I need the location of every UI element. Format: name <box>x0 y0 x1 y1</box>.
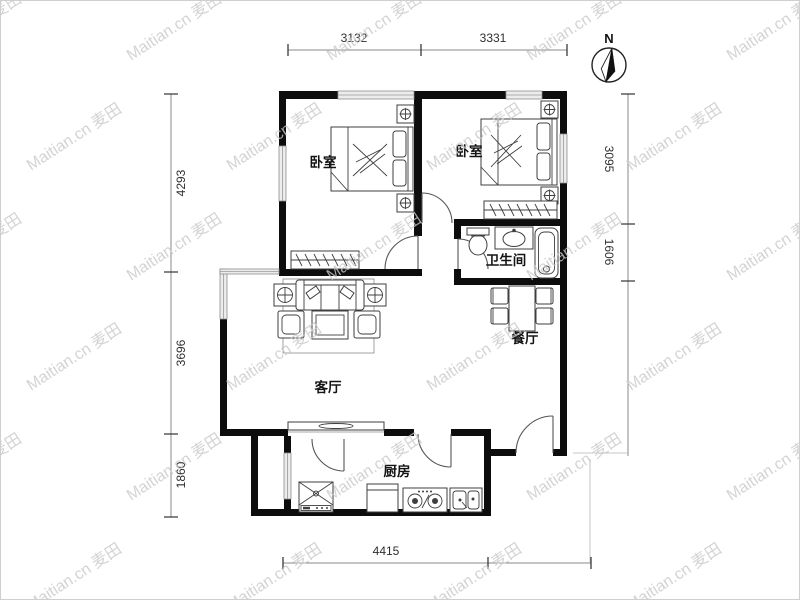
side-table-plant <box>364 284 386 306</box>
watermark-text: Maitian.cn 麦田 <box>423 320 525 395</box>
armchair <box>354 311 380 338</box>
watermark-text: Maitian.cn 麦田 <box>123 430 225 505</box>
floorplan-page: 3132 3331 4293 3696 1860 3095 1606 4415 <box>0 0 800 600</box>
wall-seg <box>560 91 567 134</box>
kitchen-sink <box>450 488 482 512</box>
watermark-text: Maitian.cn 麦田 <box>223 320 325 395</box>
door-laundry <box>312 439 344 471</box>
wall-seg <box>454 226 461 239</box>
label-bedroom1: 卧室 <box>310 154 337 170</box>
dimension-right: 3095 1606 <box>573 94 635 456</box>
watermark-text: Maitian.cn 麦田 <box>423 540 525 600</box>
wall-seg <box>284 499 291 516</box>
window-bedroom1-left <box>279 146 286 201</box>
wall-seg <box>553 449 567 456</box>
watermark-text: Maitian.cn 麦田 <box>623 540 725 600</box>
wall-seg <box>279 201 286 276</box>
watermark-text: Maitian.cn 麦田 <box>123 1 225 64</box>
side-table-plant <box>274 284 296 306</box>
watermark-text: Maitian.cn 麦田 <box>323 1 425 64</box>
dim-value: 3331 <box>480 31 507 45</box>
watermark-text: Maitian.cn 麦田 <box>123 210 225 285</box>
wall-seg <box>560 183 567 456</box>
wall-seg <box>414 91 506 99</box>
north-label: N <box>604 31 613 46</box>
watermark-text: Maitian.cn 麦田 <box>23 320 125 395</box>
dining-chair <box>491 308 508 324</box>
window-bedroom2-right <box>560 134 567 183</box>
watermark-text: Maitian.cn 麦田 <box>23 100 125 175</box>
wall-seg <box>220 429 288 436</box>
watermark-text: Maitian.cn 麦田 <box>523 430 625 505</box>
wall-seg <box>454 278 567 285</box>
furniture-dining <box>491 286 553 331</box>
dim-value: 1606 <box>602 239 616 266</box>
tv-cabinet <box>288 422 384 430</box>
window-bedroom2-top <box>506 91 542 99</box>
wall-seg <box>279 91 338 99</box>
sofa <box>296 280 364 310</box>
watermark-text: Maitian.cn 麦田 <box>723 430 800 505</box>
wall-seg <box>220 319 227 436</box>
watermark-text: Maitian.cn 麦田 <box>1 1 25 64</box>
wall-seg <box>454 219 567 226</box>
watermark-text: Maitian.cn 麦田 <box>23 540 125 600</box>
door-bedroom2 <box>422 193 452 223</box>
compass-needle <box>599 47 619 83</box>
furniture-kitchen <box>299 482 482 512</box>
dim-value: 3095 <box>602 146 616 173</box>
wardrobe <box>484 201 557 219</box>
watermark-text: Maitian.cn 麦田 <box>223 540 325 600</box>
window-laundry-partition <box>284 453 291 499</box>
bathroom-sink <box>495 227 533 249</box>
nightstand <box>541 101 558 118</box>
window-living-left <box>220 269 279 319</box>
dim-value: 3696 <box>174 339 188 366</box>
dining-chair <box>491 288 508 304</box>
label-bathroom: 卫生间 <box>486 252 527 268</box>
stove <box>403 488 447 512</box>
watermark-text: Maitian.cn 麦田 <box>623 100 725 175</box>
dining-chair <box>536 308 553 324</box>
watermark-text: Maitian.cn 麦田 <box>623 320 725 395</box>
watermark-text: Maitian.cn 麦田 <box>1 210 25 285</box>
wall-seg <box>284 436 291 453</box>
floorplan-svg: 3132 3331 4293 3696 1860 3095 1606 4415 <box>1 1 800 600</box>
nightstand <box>397 194 414 212</box>
wall-seg <box>251 436 258 516</box>
door-kitchen <box>418 434 451 467</box>
label-living: 客厅 <box>314 379 342 395</box>
window-bedroom1-top <box>338 91 414 99</box>
watermark-text: Maitian.cn 麦田 <box>723 210 800 285</box>
nightstand <box>397 105 414 123</box>
bed <box>331 127 413 191</box>
wall-seg <box>491 449 516 456</box>
dim-value: 4293 <box>174 169 188 196</box>
toilet <box>467 228 489 255</box>
door-entry <box>516 416 553 453</box>
dim-value: 4415 <box>373 544 400 558</box>
compass: N <box>592 31 626 83</box>
refrigerator <box>367 484 398 512</box>
watermark-text: Maitian.cn 麦田 <box>723 1 800 64</box>
watermark-text: Maitian.cn 麦田 <box>1 430 25 505</box>
wall-seg <box>484 429 491 516</box>
dining-chair <box>536 288 553 304</box>
